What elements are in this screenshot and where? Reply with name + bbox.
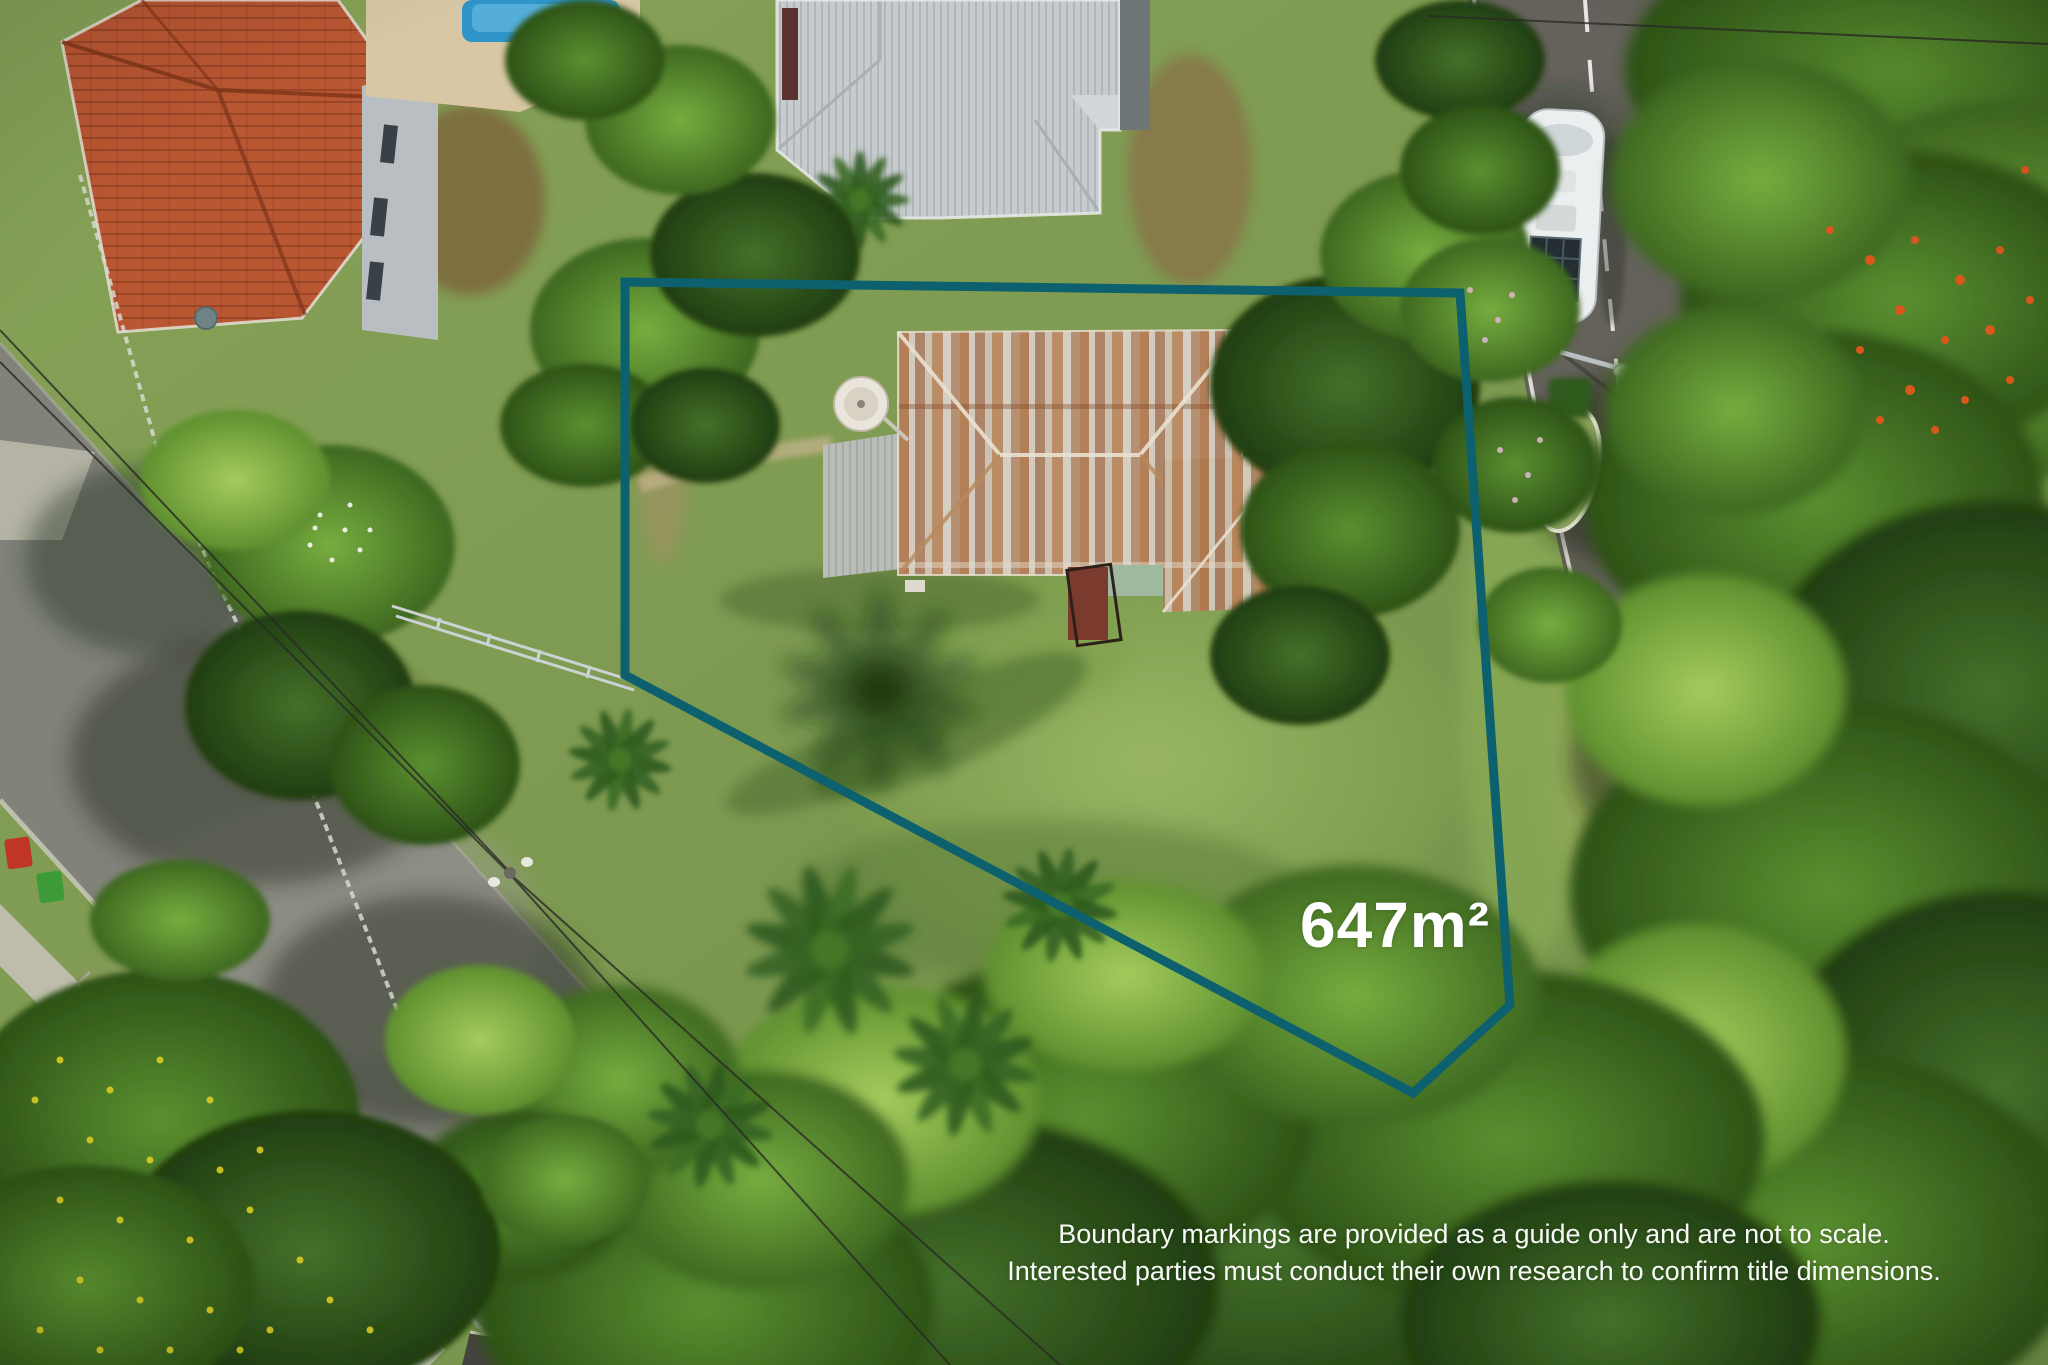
area-label: 647m²	[1300, 888, 1490, 962]
disclaimer: Boundary markings are provided as a guid…	[874, 1216, 2048, 1290]
disclaimer-line-1: Boundary markings are provided as a guid…	[874, 1216, 2048, 1253]
aerial-photo	[0, 0, 2048, 1365]
disclaimer-line-2: Interested parties must conduct their ow…	[874, 1253, 2048, 1290]
vignette	[0, 0, 2048, 1365]
aerial-photo-stage: 647m² Boundary markings are provided as …	[0, 0, 2048, 1365]
